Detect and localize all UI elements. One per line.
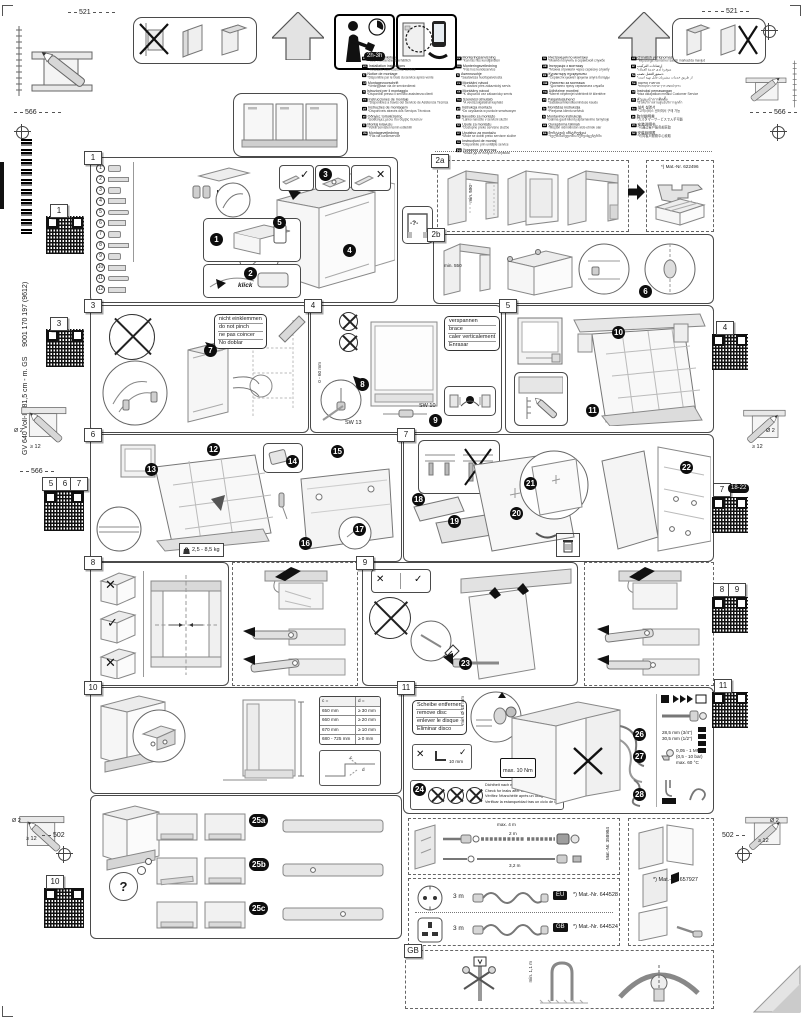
qr-code-step11 — [712, 692, 748, 728]
flow-icons — [660, 693, 708, 705]
p6-sticker-inset: 14 — [263, 443, 303, 473]
pencil-drill-icon — [738, 384, 798, 458]
language-entry: kaმონტაჟის ინსტრუქცია*ხელმისაწვდომია სერ… — [542, 131, 633, 138]
gb-panel-label: GB — [404, 944, 422, 958]
p11-note-box: Scheibe entfernenremove discenlever le d… — [412, 700, 467, 735]
language-code-badge: lt — [542, 115, 546, 119]
p8-niche-art — [149, 573, 223, 677]
panel-step1: 1 123456789101112 — [90, 157, 398, 303]
part-icon — [108, 243, 129, 248]
cord-mat-nr-eu: *) Mat.-Nr. 644528 — [573, 892, 618, 899]
cord-length-label: 3 m — [453, 925, 464, 933]
language-note: *可向客戶服務中心索取 — [638, 135, 671, 139]
note-line: Enrasar — [448, 342, 496, 349]
language-note: *Yetkili servisten temin edilebilir — [367, 127, 412, 131]
furniture-front-box — [233, 93, 348, 157]
cabinet-type-icons — [97, 569, 139, 679]
table-header-c: c = — [320, 697, 356, 706]
language-entry: mkУпатство за монтажа*Достапно преку сер… — [542, 81, 633, 88]
divider — [143, 571, 144, 677]
mount-types-icons — [136, 20, 252, 59]
language-code-badge: pt — [362, 107, 367, 111]
label-d: d — [362, 767, 365, 772]
language-note: *Disponibile prin unităţile service — [462, 144, 508, 148]
p2b-illustration — [438, 239, 709, 299]
language-code-badge: az — [542, 123, 547, 127]
qr-code-step1 — [46, 216, 84, 254]
min-diameter-label: min. Ø 18 mm — [460, 696, 465, 725]
plinth-variant-art — [153, 804, 393, 932]
language-entry: frNotice de montage*Disponible par le bi… — [362, 73, 453, 80]
divider — [656, 694, 657, 807]
bubble-dot — [137, 866, 146, 875]
language-code-badge: ka — [542, 132, 547, 136]
do-not-icon — [109, 314, 155, 360]
language-entry: enInstallation instructions*Available fr… — [362, 64, 453, 71]
language-note: *Do uzyskania w punkcie serwisowym — [462, 110, 516, 114]
part-icon — [108, 165, 121, 172]
divider — [133, 162, 134, 262]
hose-over-pipe-art — [616, 953, 702, 1005]
cell-d: ≥ 20 mm — [356, 716, 378, 725]
water-pressure-label: 0,05 - 1 MPa — [676, 748, 702, 753]
language-entry: skMontážny návod*K dispozícii cez zákazn… — [456, 89, 547, 96]
part-number: 7 — [96, 230, 105, 239]
parts-list-item: 12 — [96, 285, 129, 295]
hose-mat-nr: Mat.-Nr. 358984 — [605, 827, 610, 860]
bubble-dot — [145, 858, 152, 865]
language-code-badge: id — [631, 90, 636, 94]
language-code-badge: en — [362, 65, 367, 69]
table-row: 670 mm≥ 10 mm — [320, 726, 380, 736]
part-number: 11 — [96, 274, 105, 283]
step-badge: 26 — [633, 728, 646, 741]
connection-size-b: 30,5 mm (1/2") — [662, 736, 692, 741]
weight-icon — [183, 546, 190, 555]
part-icon — [108, 253, 121, 260]
step-badge: 5 — [273, 216, 286, 229]
language-note: *Може да се получи от сервиза — [463, 152, 510, 156]
qr-label-10: 10 — [46, 875, 64, 889]
part-number: 6 — [96, 219, 105, 228]
p1-step3-inset: 3 — [315, 165, 350, 191]
panel-number: 6 — [84, 428, 102, 442]
panel-number: 11 — [397, 681, 415, 695]
furniture-front-icons — [236, 96, 343, 152]
language-entry: daMontagevejledning*Fås via kundeservice — [362, 131, 453, 138]
language-column-4: uzO‘rnatish yo‘riqnomasi*Mijozlarga xizm… — [631, 56, 722, 140]
part-number: 3 — [96, 186, 105, 195]
question-mark: ? — [120, 879, 128, 894]
clearance-table: c = d = 650 mm≥ 30 mm660 mm≥ 20 mm670 mm… — [319, 696, 381, 745]
panel-step10-plinth: ? 25a 25b 25c — [90, 795, 402, 939]
klick-label: klick — [238, 282, 252, 290]
note-line: remove disc — [416, 710, 463, 718]
panel-number: 4 — [304, 299, 322, 313]
panel-step6: 6 14 12 13 15 16 17 — [90, 434, 402, 562]
note-line: do not pinch — [218, 324, 263, 332]
language-code-badge: pl — [456, 107, 461, 111]
language-note: *K dispozícii cez zákaznícky servis — [463, 93, 513, 97]
language-entry: trMontaj kılavuzu*Yetkili servisten temi… — [362, 123, 453, 130]
qr-label-9: 9 — [728, 583, 746, 597]
parts-list-item: 10 — [96, 263, 129, 273]
hose-clip-art — [660, 706, 708, 724]
part-icon — [108, 231, 121, 238]
drill-diameter-label: Ø 2 — [14, 428, 23, 435]
panel-2a-accessory: *) Mat.-Nr. 622496 — [646, 160, 714, 232]
language-code-badge: ja — [631, 115, 635, 119]
language-note: *カスタマーサービスで入手可能 — [637, 118, 683, 122]
label-c: c — [350, 755, 352, 760]
note-line: caler verticalement — [448, 334, 496, 342]
parts-list-item: 6 — [96, 218, 129, 228]
language-note: *Dostupne preko servisne službe — [462, 127, 509, 131]
part-number: 2 — [96, 175, 105, 184]
arrow-right-icon — [628, 184, 645, 200]
crop-mark-icon — [2, 5, 13, 16]
step-badge: 4 — [343, 244, 356, 257]
divider — [435, 151, 712, 152]
region-badge-gb: GB — [553, 923, 568, 932]
table-row: 660 mm≥ 20 mm — [320, 716, 380, 726]
language-note: *Može se dobiti preko servisne službe — [462, 135, 516, 139]
trash-bin-icon — [561, 537, 575, 553]
panel-number: 8 — [84, 556, 102, 570]
panel-step10: 10 c = d = 650 mm≥ 30 mm660 mm≥ 20 mm670… — [90, 687, 402, 794]
language-entry: sqUdhëzime montimi*Merret nëpërmjet shër… — [542, 89, 633, 96]
language-code-badge: it — [362, 90, 366, 94]
cross-icon: ✕ — [105, 655, 116, 671]
leveling-icon — [448, 391, 492, 411]
language-code-badge: sr — [456, 132, 461, 136]
drill-depth-label: ≥ 12 — [30, 444, 41, 451]
table-header-d: d = — [356, 697, 367, 706]
language-entry: esInstrucciones de montaje*Disponibles a… — [362, 98, 453, 105]
language-column-2: svMonteringsanvisning*Kan fås hos kundtj… — [456, 56, 547, 156]
strip-art — [282, 174, 300, 186]
language-code-badge: uz — [631, 56, 636, 60]
water-pressure-bar-label: (0,5 - 10 bar) — [676, 754, 703, 759]
language-note: *มีให้บริการผ่านศูนย์บริการลูกค้า — [637, 102, 682, 106]
accessory-mat-nr: *) Mat.-Nr. 622496 — [661, 164, 699, 169]
check-icon: ✓ — [459, 747, 467, 758]
language-note: *A vevőszolgálatnál kapható — [463, 102, 503, 106]
do-not-icon — [428, 787, 445, 804]
cell-c: 650 mm — [320, 707, 356, 716]
language-code-badge: tw — [631, 132, 636, 136]
language-note: *Достапно преку сервисната служба — [550, 85, 604, 89]
parts-list-item: 3 — [96, 185, 129, 195]
parts-list-item: 4 — [96, 196, 129, 206]
parts-list: 123456789101112 — [96, 163, 129, 295]
p3-note-box: nicht einklemmendo not pinchne pas coinc… — [214, 314, 267, 349]
step-badge: 15 — [331, 445, 344, 458]
barcode — [21, 139, 32, 234]
template-sheet-art — [514, 314, 566, 368]
language-code-badge: el — [362, 115, 366, 119]
siphon-icons — [660, 776, 708, 806]
language-code-badge: ko — [631, 107, 636, 111]
p4-note-box: verspannenbracecaler verticalementEnrasa… — [444, 316, 500, 351]
cord-mat-nr-gb: *) Mat.-Nr. 644524 — [573, 924, 618, 931]
language-entry: azQuraşdırma təlimatı*Müştəri xidmətində… — [542, 123, 633, 130]
dimension-566-left: 566 — [12, 109, 63, 116]
language-note: *Merret nëpërmjet shërbimit të klientëve — [549, 93, 606, 97]
qr-code-steps5-7 — [44, 491, 84, 531]
socket-gb-icon — [417, 917, 443, 943]
qr-label-11: 11 — [714, 679, 732, 693]
part-icon — [108, 287, 126, 293]
question-label: -?- — [410, 220, 418, 228]
gb-min-height-label: min. 1,1 m — [528, 961, 533, 982]
dimension-566-mid: 566 — [18, 468, 56, 475]
part-icon — [108, 265, 126, 271]
part-icon — [108, 198, 126, 204]
p6-illustration — [93, 437, 399, 559]
language-note: *Disponible par le biais du service aprè… — [367, 77, 433, 81]
parts-list-item: 8 — [96, 241, 129, 251]
language-note: *Fås hos kundeservice — [463, 68, 497, 72]
step-badge: 24 — [413, 783, 426, 796]
step-badge: 2 — [244, 267, 257, 280]
socket-eu-icon — [417, 885, 443, 911]
side-panel-mat-nr: *) Mat.-Nr. 657927 — [653, 877, 698, 884]
hose-loop-art — [534, 955, 594, 1005]
language-entry: srUputstvo za montažu*Može se dobiti pre… — [456, 131, 547, 138]
arrow-up-icon — [618, 12, 670, 60]
note-line: brace — [448, 326, 496, 334]
language-note: *고객서비스 센터에서 구매 가능 — [638, 110, 680, 114]
language-note: *可通过客户服务部获取 — [638, 127, 671, 131]
language-entry: nlMontagevoorschrift*Verkrijgbaar via de… — [362, 81, 453, 88]
language-entry: hrUpute za montažu*Dostupne preko servis… — [456, 123, 547, 130]
step-badge: 16 — [299, 537, 312, 550]
language-note: *Available from customer service — [369, 68, 416, 72]
language-note: *متوفرة لدى خدمة العملاء — [637, 68, 671, 72]
step-badge: 18 — [412, 493, 425, 506]
language-code-badge: th — [631, 98, 636, 102]
cross-icon: ✕ — [105, 577, 116, 593]
language-entry: zh安装说明书*可通过客户服务部获取 — [631, 123, 722, 130]
language-code-badge: sk — [456, 90, 461, 94]
note-line: Eliminar disco — [416, 726, 463, 733]
disposal-box — [556, 533, 580, 557]
language-code-badge: kk — [542, 73, 547, 77]
check-icon: ✓ — [107, 615, 118, 631]
panel-number: 5 — [499, 299, 517, 313]
language-note: *Disponibili presso il servizio assisten… — [367, 93, 433, 97]
dimension-566-right: 566 — [748, 109, 799, 116]
language-note: *Disponibles a través del Servicio de As… — [369, 102, 449, 106]
power-cord-box: 3 m EU *) Mat.-Nr. 644528 3 m GB *) Mat.… — [408, 878, 620, 946]
p4-level-inset — [444, 386, 496, 416]
p10-detail-inset: c d — [319, 750, 381, 786]
dimension-521-left: 521 — [66, 9, 117, 16]
part-number: 10 — [96, 263, 105, 272]
language-note: *K dostání přes zákaznický servis — [463, 85, 511, 89]
time-estimate-badge: 2h-3h — [364, 52, 385, 61]
do-not-icon — [339, 333, 358, 352]
language-code-badge: sl — [456, 115, 460, 119]
parts-list-item: 2 — [96, 174, 129, 184]
language-code-badge: no — [456, 65, 462, 69]
language-note: *Disponíveis através dos Serviços Técnic… — [368, 110, 430, 114]
do-not-icon — [466, 787, 483, 804]
language-note: *Можно получить в сервисной службе — [548, 60, 605, 64]
qr-step-range-badge: 18-22 — [728, 484, 749, 493]
step-badge: 3 — [319, 168, 332, 181]
language-note: *Kan fås hos kundtjänsten — [463, 60, 500, 64]
registration-mark-icon — [16, 126, 29, 139]
p11-allen-box: ✕ ✓ 10 mm — [412, 744, 472, 770]
table-row: 680 - 725 mm≥ 0 mm — [320, 735, 380, 744]
hose-mid-length-label: 2 m — [509, 831, 517, 836]
step-badge: 28 — [633, 788, 646, 801]
language-code-badge: cs — [456, 81, 461, 85]
panel-number: 2b — [427, 228, 445, 242]
step-badge: 23 — [459, 657, 472, 670]
drill-depth-label: ≥ 12 — [26, 836, 37, 843]
do-not-icon — [447, 787, 464, 804]
language-entry: plInstrukcja montażu*Do uzyskania w punk… — [456, 106, 547, 113]
note-line: No doblar — [218, 340, 263, 347]
qr-label-1: 1 — [50, 204, 68, 218]
arrow-up-icon — [272, 12, 324, 60]
language-note: *Можна отримати через сервісну службу — [549, 68, 610, 72]
dimension-502-left: 502 — [40, 832, 65, 839]
parts-list-item: 11 — [96, 274, 129, 284]
language-entry: roInstrucţiuni de montaj*Disponibile pri… — [456, 140, 547, 147]
panel-step4: 4 0 - 60 mm 8 SW 13 9 SW 10 verspannenbr… — [310, 305, 502, 433]
region-badge-eu: EU — [553, 891, 567, 900]
height-range-label: 0 - 60 mm — [317, 362, 322, 383]
cell-c: 680 - 725 mm — [320, 735, 356, 744]
do-not-icon — [369, 597, 411, 639]
panel-step3: 3 nicht einklemmendo not pinchne pas coi… — [90, 305, 309, 433]
p1-check-inset: ✓ — [279, 165, 314, 191]
language-code-badge: fi — [456, 73, 460, 77]
drill-diameter-label: Ø 2 — [770, 818, 779, 825]
registration-mark-icon — [772, 126, 785, 139]
cell-d: ≥ 0 mm — [356, 735, 375, 744]
language-note: *Сервистік қызмет арқылы алуға болады — [549, 77, 610, 81]
step-badge: 10 — [612, 326, 625, 339]
installation-sheet: 521 2h-3h — [0, 0, 802, 1022]
language-code-badge: sq — [542, 90, 547, 94]
language-entry: ukІнструкція з монтажу*Можна отримати че… — [542, 64, 633, 71]
language-code-badge: da — [362, 132, 367, 136]
qr-code-step4 — [712, 334, 748, 370]
cell-c: 660 mm — [320, 716, 356, 725]
step-badge: 19 — [448, 515, 461, 528]
qr-label-7: 7 — [70, 477, 88, 491]
p1-inset-step2: 2 klick — [203, 264, 301, 298]
language-code-badge: ru — [542, 56, 547, 60]
forbidden-mount-types-box — [133, 17, 257, 64]
step-badge: 8 — [356, 378, 369, 391]
language-note: *Lahko naročite v servisni službi — [462, 118, 508, 122]
step-badge: 9 — [429, 414, 442, 427]
strip-art — [239, 567, 351, 681]
drill-depth-label: ≥ 12 — [752, 444, 763, 451]
language-code-badge: lv — [542, 107, 546, 111]
language-entry: uzO‘rnatish yo‘riqnomasi*Mijozlarga xizm… — [631, 56, 722, 63]
qr-label-3: 3 — [50, 317, 68, 331]
doc-number-text: 9001 170 197 (9612) — [22, 282, 29, 347]
note-line: nicht einklemmen — [218, 316, 263, 324]
crop-mark-icon — [790, 5, 801, 16]
side-panel-accessory-box: *) Mat.-Nr. 657927 — [628, 818, 714, 946]
part-number: 9 — [96, 252, 105, 261]
panel-step11: 11 Scheibe entfernenremove discenlever l… — [403, 687, 714, 814]
panel-step9: 9 ✕ ✓ 23 — [362, 562, 578, 686]
panel-step5: 5 10 11 — [505, 305, 714, 433]
hose-low-length-label: 3,2 m — [509, 863, 521, 868]
drill-diameter-label: Ø 2 — [766, 428, 775, 435]
language-note: *Müştəri xidmətindən əldə etmək olar — [548, 127, 601, 131]
part-number: 4 — [96, 197, 105, 206]
p10-illustration — [95, 692, 321, 789]
language-entry: slNavodilo za montažo*Lahko naročite v s… — [456, 115, 547, 122]
language-note: *Verkrijgbaar via de servicedienst — [368, 85, 416, 89]
part-icon — [108, 276, 129, 281]
table-body: 650 mm≥ 30 mm660 mm≥ 20 mm670 mm≥ 10 mm6… — [320, 707, 380, 744]
language-entry: csMontážní návod*K dostání přes zákaznic… — [456, 81, 547, 88]
language-entry: itIstruzioni per il montaggio*Disponibil… — [362, 89, 453, 96]
language-entry: elΟδηγίες τοποθέτησης*Διαθέσιμες μέσω το… — [362, 115, 453, 122]
qr-label-4: 4 — [716, 321, 734, 335]
dimension-521-right: 521 — [700, 8, 751, 15]
language-note: *Saatavissa huoltopalvelusta — [461, 77, 502, 81]
step-badge: 25b — [249, 858, 269, 871]
step-badge: 1 — [210, 233, 223, 246]
step-badge: 25c — [249, 902, 268, 915]
language-entry: ja取付説明書*カスタマーサービスで入手可能 — [631, 115, 722, 122]
panel-number: 2a — [431, 154, 449, 168]
language-code-badge: zh — [631, 123, 636, 127]
parts-list-item: 7 — [96, 229, 129, 239]
step-badge: 20 — [510, 507, 523, 520]
allen-key-icon — [433, 750, 449, 764]
part-icon — [108, 220, 126, 226]
page-curl-corner — [750, 958, 802, 1014]
language-entry: ruИнструкция по монтажу*Можно получить в… — [542, 56, 633, 63]
step-badge: 13 — [145, 463, 158, 476]
language-note: *Fås via kundeservice — [369, 135, 400, 139]
water-temp-label: max. 60 °C — [676, 760, 699, 765]
p1-cross-inset: ✕ — [351, 165, 391, 191]
language-entry: fiAsennusohje*Saatavissa huoltopalvelust… — [456, 73, 547, 80]
registration-mark-icon — [737, 848, 750, 861]
tap-icon — [660, 748, 674, 762]
language-note: *Saadaval klienditeeninduse kaudu — [548, 102, 598, 106]
connection-size-a: 28,5 mm (3/4") — [662, 730, 692, 735]
torque-label-box: max. 10 Nm — [500, 758, 536, 778]
panel-number: 3 — [84, 299, 102, 313]
table-row: 650 mm≥ 30 mm — [320, 707, 380, 717]
registration-mark-icon — [763, 25, 776, 38]
language-entry: ltMontavimo instrukcija*Galima gauti kli… — [542, 115, 633, 122]
panel-number: 9 — [356, 556, 374, 570]
part-number: 12 — [96, 285, 105, 294]
qr-code-step3 — [46, 329, 84, 367]
parts-list-item: 9 — [96, 252, 129, 262]
p1-inset1-art — [230, 223, 294, 256]
language-code-badge: tr — [362, 123, 366, 127]
panel-number: 7 — [397, 428, 415, 442]
cord-length-label: 3 m — [453, 893, 464, 901]
